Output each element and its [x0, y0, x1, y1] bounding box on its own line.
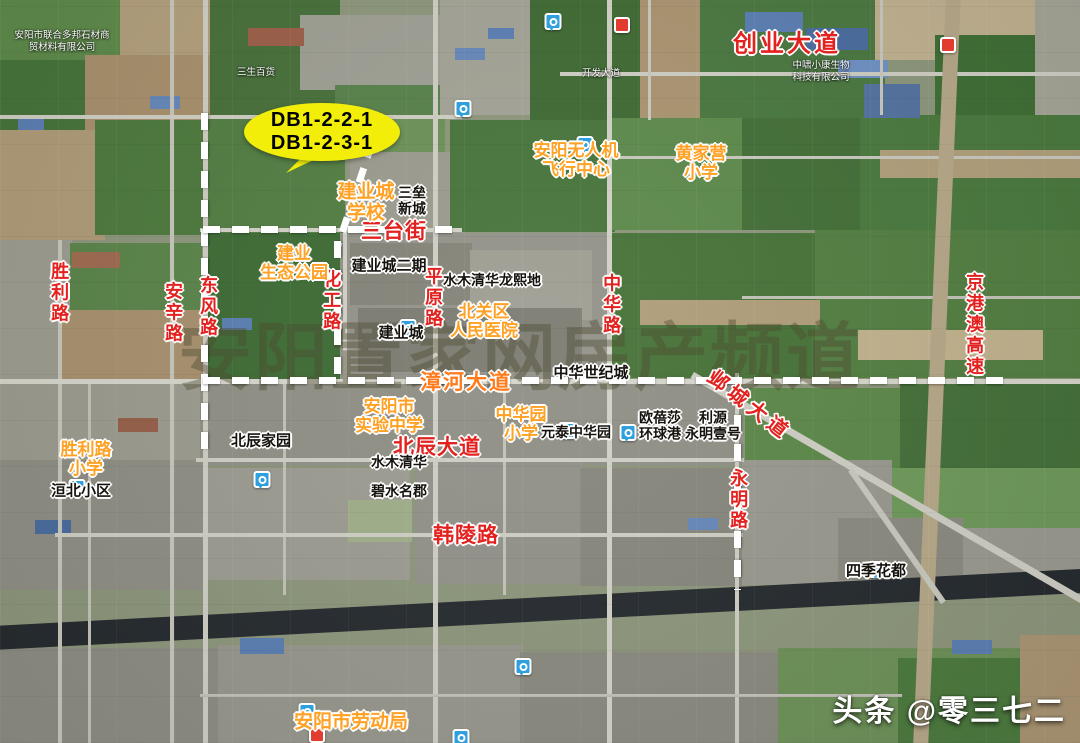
poi-label-beiguan-hospital: 北关区 人民医院 [450, 302, 518, 340]
poi-label-anyang-shiyan-middle: 安阳市 实验中学 [355, 397, 423, 435]
small-label-kaifa-dadao: 开发大道 [582, 68, 620, 80]
terrain-patch [520, 652, 782, 743]
map-pin-icon [545, 13, 562, 30]
place-label-beichen-jiayuan: 北辰家园 [231, 434, 291, 451]
terrain-patch [18, 118, 44, 130]
map-pin-icon [455, 100, 472, 117]
terrain-patch [150, 96, 180, 109]
road-line [880, 0, 883, 115]
map-pin-icon [254, 471, 271, 488]
poi-label-huangjiaying-primary: 黄家营 小学 [676, 144, 727, 182]
branding-toutiao: 头条 @零三七二 [832, 686, 1066, 730]
road-line [55, 533, 743, 537]
watermark: 安阳置家网房产频道 [178, 298, 862, 405]
place-label-jianyecheng: 建业城 [378, 326, 423, 343]
map-pin-icon [515, 658, 532, 675]
road-label-chuangye-dadao: 创业大道 [733, 32, 841, 59]
poi-label-jianye-eco-park: 建业 生态公园 [260, 244, 328, 282]
road-line [88, 380, 91, 743]
small-label-sansheng-store: 三生百货 [237, 67, 275, 79]
place-label-huanbei-xiaoqu: 洹北小区 [51, 484, 111, 501]
small-label-zhongxiao-biotech: 中啸小康生物 科技有限公司 [792, 60, 849, 84]
place-label-zhonghua-century-city: 中华世纪城 [553, 366, 628, 383]
poi-label-shengli-primary: 胜利路 小学 [61, 440, 112, 478]
terrain-patch [248, 28, 304, 46]
road-label-hanling-lu: 韩陵路 [433, 524, 499, 548]
road-line [0, 115, 462, 119]
terrain-patch [0, 460, 205, 590]
terrain-patch [118, 418, 158, 432]
terrain-patch [72, 252, 120, 268]
terrain-patch [858, 330, 1043, 360]
parcel-id-2: DB1-2-3-1 [271, 132, 373, 155]
map-marker-red-icon [940, 37, 956, 53]
place-label-siji-huadu: 四季花都 [846, 564, 906, 581]
place-label-yuantai-zhonghuayuan: 元泰中华园 [541, 425, 611, 441]
terrain-patch [0, 130, 105, 240]
place-label-jianyecheng-phase2: 建业城二期 [351, 259, 426, 276]
terrain-patch [1035, 0, 1080, 125]
road-label-jinggangao-gaosu: 京港澳高速 [964, 273, 984, 378]
terrain-patch [415, 462, 583, 584]
road-line [200, 694, 902, 697]
place-label-oubeisha-global-port: 欧蓓莎 环球港 [639, 410, 681, 441]
place-label-liyuan-yongming: 利源 永明壹号 [685, 410, 741, 441]
terrain-patch [0, 648, 222, 743]
poi-label-uav-center: 安阳无人机 飞行中心 [534, 141, 619, 179]
terrain-patch [742, 118, 862, 230]
satellite-map: 安阳置家网房产频道 创业大道 三台街 漳河大道 北辰大道 韩陵路 邺城大道 胜利… [0, 0, 1080, 743]
poi-label-zhonghuayuan-primary: 中华园 小学 [496, 405, 547, 443]
terrain-patch [880, 150, 1080, 178]
place-label-shuimu-qinghua-longxi: 水木清华龙熙地 [443, 273, 541, 289]
terrain-patch [864, 84, 920, 118]
terrain-patch [240, 638, 284, 654]
map-pin-icon [453, 729, 470, 743]
terrain-patch [488, 28, 514, 39]
road-label-zhanghe-dadao: 漳河大道 [420, 371, 512, 395]
small-label-stone-company: 安阳市联合多邦石材商 贸材料有限公司 [14, 30, 109, 54]
road-label-pingyuan-lu: 平原路 [423, 267, 443, 330]
parcel-callout: DB1-2-2-1 DB1-2-3-1 [244, 103, 400, 161]
parcel-id-1: DB1-2-2-1 [271, 109, 373, 132]
poi-label-jianyecheng-school: 建业城 学校 [337, 182, 394, 225]
place-label-shuimu-qinghua: 水木清华 [371, 455, 427, 471]
road-label-anxin-lu: 安辛路 [163, 282, 183, 345]
map-pin-icon [620, 424, 637, 441]
terrain-patch [300, 15, 445, 90]
road-label-dongfeng-lu: 东风路 [198, 276, 218, 339]
road-label-zhonghua-lu: 中华路 [601, 274, 621, 337]
terrain-patch [455, 48, 485, 60]
terrain-patch [688, 518, 718, 530]
road-label-shengli-lu: 胜利路 [49, 262, 69, 325]
terrain-patch [745, 12, 803, 32]
terrain-patch [95, 120, 210, 235]
place-label-bishui-mingjun: 碧水名郡 [371, 484, 427, 500]
road-line [170, 0, 174, 743]
poi-label-anyang-labor-bureau: 安阳市劳动局 [294, 711, 408, 732]
terrain-patch [35, 520, 71, 534]
place-label-sanlei-xincheng: 三垒 新城 [398, 185, 426, 216]
map-marker-red-icon [614, 17, 630, 33]
terrain-patch [952, 640, 992, 654]
road-line [283, 380, 286, 595]
road-line [648, 0, 651, 120]
road-label-yongming-lu: 永明路 [728, 469, 748, 532]
